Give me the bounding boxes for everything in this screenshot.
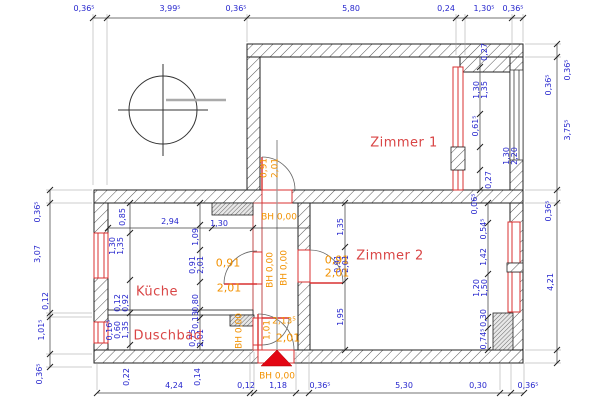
dimension-label: 0,36⁵ [36, 363, 44, 384]
dimension-label: 2,94 [161, 218, 179, 226]
dimension-label: 0,36⁵ [34, 201, 42, 222]
dimension-label: 2,20 [511, 147, 519, 165]
door-dimension-label: 2,13⁵ [272, 318, 296, 327]
dimension-label: 3,99⁵ [159, 5, 180, 13]
dimension-label: 1,35 [337, 218, 345, 236]
dimension-label: 0,74⁵ [480, 328, 488, 349]
dimension-label: 1,95 [337, 308, 345, 326]
dimension-label: 0,36⁵ [545, 200, 553, 221]
dimension-label: 0,36⁵ [225, 5, 246, 13]
door-dimension-label: 0,91 [216, 258, 241, 269]
room-label: Zimmer 1 [370, 137, 438, 150]
dimension-label: 3,75⁵ [564, 119, 572, 140]
room-label: Zimmer 2 [356, 250, 424, 263]
dimension-label: 1,18 [269, 382, 287, 390]
dimension-label: 1,30⁵ [473, 5, 494, 13]
dimension-label: 0,06⁵ [471, 193, 479, 214]
dimension-label: 0,80 [192, 294, 200, 312]
dimension-label: 5,80 [342, 5, 360, 13]
window-pier-zimmer2 [507, 263, 523, 272]
dimension-label: 0,36⁵ [73, 5, 94, 13]
dimension-label: 4,24 [165, 382, 183, 390]
dimension-label: 1,09 [192, 228, 200, 246]
dimension-label: 0,36⁵ [309, 382, 330, 390]
dimension-label: 0,12 [237, 382, 255, 390]
level-label: BH 0,00 [261, 214, 297, 223]
dimension-label: 0,30 [480, 309, 488, 327]
door-dimension-label: 0,91 [261, 158, 270, 178]
dimension-label: 0,22 [123, 368, 131, 386]
dimension-label: 0,13 [192, 311, 200, 329]
level-label: BH 0,00 [259, 373, 295, 382]
dimension-label: 1,35 [117, 237, 125, 255]
door-dimension-label: 2,01 [217, 283, 242, 294]
dimension-label: 0,54⁵ [480, 218, 488, 239]
dimension-label: 2,01 [197, 256, 205, 274]
dimension-label: 1,35 [122, 321, 130, 339]
dimension-label: 0,61⁵ [472, 115, 480, 136]
window-left-upper [94, 233, 108, 278]
level-symbol [118, 64, 226, 156]
door-dimension-label: 2,01 [272, 158, 281, 178]
dimension-label: 1,01⁵ [38, 319, 46, 340]
dimension-label: 0,24 [437, 5, 455, 13]
dimension-label: 5,30 [395, 382, 413, 390]
dimension-label: 3,07 [34, 245, 42, 263]
room-label: Küche [136, 286, 178, 299]
dimension-label: 0,27 [485, 171, 493, 189]
window-band-zimmer1 [453, 67, 463, 190]
dimension-label: 0,30 [469, 382, 487, 390]
dimension-label: 0,36⁵ [564, 59, 572, 80]
door-dimension-label: 2,01 [276, 333, 301, 344]
dimension-label: 1,50 [481, 279, 489, 297]
dimension-label: 1,30 [210, 220, 228, 228]
room-label: Duschbad [134, 330, 203, 343]
door-dimension-label: 0,91 [325, 255, 350, 266]
dimension-label: 0,14 [194, 368, 202, 386]
dimension-label: 0,36⁵ [502, 5, 523, 13]
level-label: BH 0,00 [281, 250, 290, 286]
dimension-label: 1,42 [480, 248, 488, 266]
level-label: BH 0,00 [236, 313, 245, 349]
dimension-label: 0,12 [42, 292, 50, 310]
dimension-label: 1,35 [481, 81, 489, 99]
dimension-label: 0,36⁵ [517, 382, 538, 390]
dimension-label: 0,85 [119, 208, 127, 226]
dimension-label: 0,36⁵ [545, 74, 553, 95]
door-dimension-label: 1,01 [264, 320, 273, 340]
dimension-label: 0,27 [481, 43, 489, 61]
dimension-label: 0,92 [122, 294, 130, 312]
door-dimension-label: 2,01 [325, 268, 350, 279]
dimension-label: 4,21 [547, 273, 555, 291]
level-label: BH 0,00 [267, 252, 276, 288]
floorplan-sheet: 0,36⁵3,99⁵0,36⁵5,800,241,30⁵0,36⁵4,240,1… [0, 0, 600, 400]
window-pier-zimmer1 [451, 147, 465, 170]
